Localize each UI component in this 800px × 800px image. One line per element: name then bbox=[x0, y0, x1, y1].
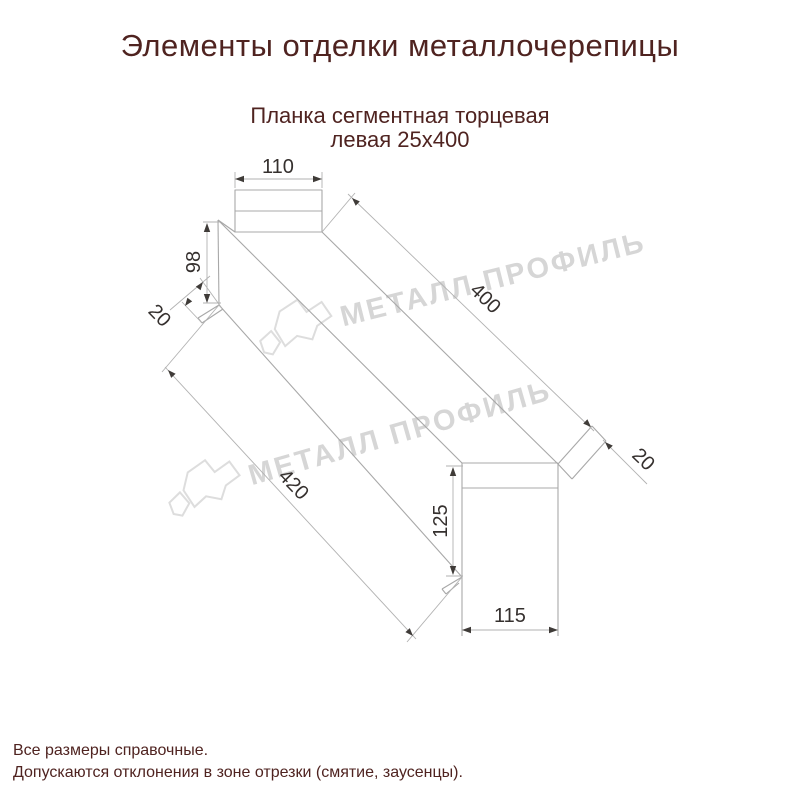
page: Элементы отделки металлочерепицы Планка … bbox=[0, 0, 800, 800]
watermark-text: МЕТАЛЛ ПРОФИЛЬ bbox=[337, 226, 649, 333]
metall-profil-logo-icon bbox=[167, 491, 192, 518]
footer-note-line2: Допускаются отклонения в зоне отрезки (с… bbox=[13, 762, 463, 784]
dimension-label-end-width: 115 bbox=[494, 605, 526, 627]
dimension-label-left-hem: 20 bbox=[144, 300, 175, 331]
footer-notes: Все размеры справочные. Допускаются откл… bbox=[13, 740, 463, 784]
dimension-label-end-height: 125 bbox=[430, 504, 452, 537]
watermark-top: МЕТАЛЛ ПРОФИЛЬ bbox=[253, 215, 650, 357]
metall-profil-logo-icon bbox=[269, 293, 335, 348]
dimension-label-flange-width: 110 bbox=[262, 156, 294, 178]
footer-note-line1: Все размеры справочные. bbox=[13, 740, 463, 762]
drawing-canvas: МЕТАЛЛ ПРОФИЛЬ МЕТАЛЛ ПРОФИЛЬ bbox=[0, 0, 800, 800]
dimension-labels: 110 98 20 400 20 420 125 115 bbox=[144, 156, 659, 627]
dimension-label-left-height: 98 bbox=[183, 251, 205, 273]
dimension-label-end-hem: 20 bbox=[628, 444, 659, 475]
watermark-bottom: МЕТАЛЛ ПРОФИЛЬ bbox=[161, 363, 556, 518]
